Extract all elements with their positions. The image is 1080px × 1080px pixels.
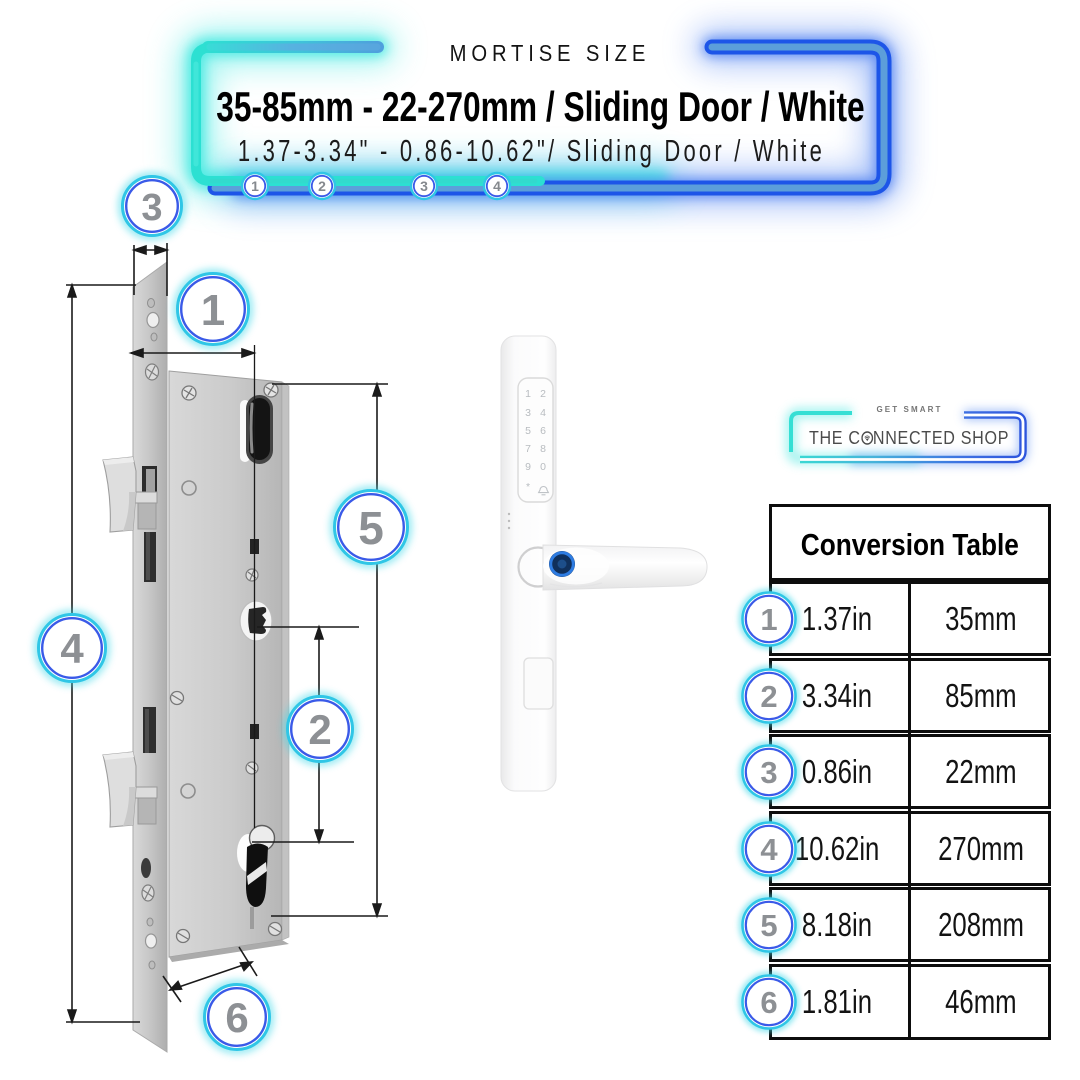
svg-text:4: 4: [493, 178, 501, 194]
svg-text:5: 5: [525, 425, 531, 437]
svg-text:1: 1: [525, 388, 531, 400]
svg-text:6: 6: [540, 425, 546, 437]
svg-text:3: 3: [525, 407, 531, 419]
svg-text:4: 4: [60, 625, 84, 672]
svg-text:*: *: [526, 481, 530, 493]
svg-text:8: 8: [540, 443, 546, 455]
svg-text:5: 5: [358, 502, 384, 554]
svg-text:3: 3: [760, 755, 777, 790]
svg-text:1: 1: [201, 286, 225, 335]
svg-text:2: 2: [540, 388, 546, 400]
svg-text:0: 0: [540, 461, 546, 473]
svg-text:6: 6: [760, 985, 777, 1020]
svg-text:2: 2: [760, 679, 777, 714]
svg-text:4: 4: [760, 832, 778, 867]
svg-text:9: 9: [525, 461, 531, 473]
svg-text:4: 4: [540, 407, 546, 419]
svg-text:1: 1: [760, 602, 777, 637]
svg-text:3: 3: [141, 187, 162, 229]
svg-text:6: 6: [225, 994, 248, 1041]
svg-text:2: 2: [308, 706, 331, 753]
svg-text:7: 7: [525, 443, 531, 455]
svg-text:5: 5: [760, 908, 777, 943]
